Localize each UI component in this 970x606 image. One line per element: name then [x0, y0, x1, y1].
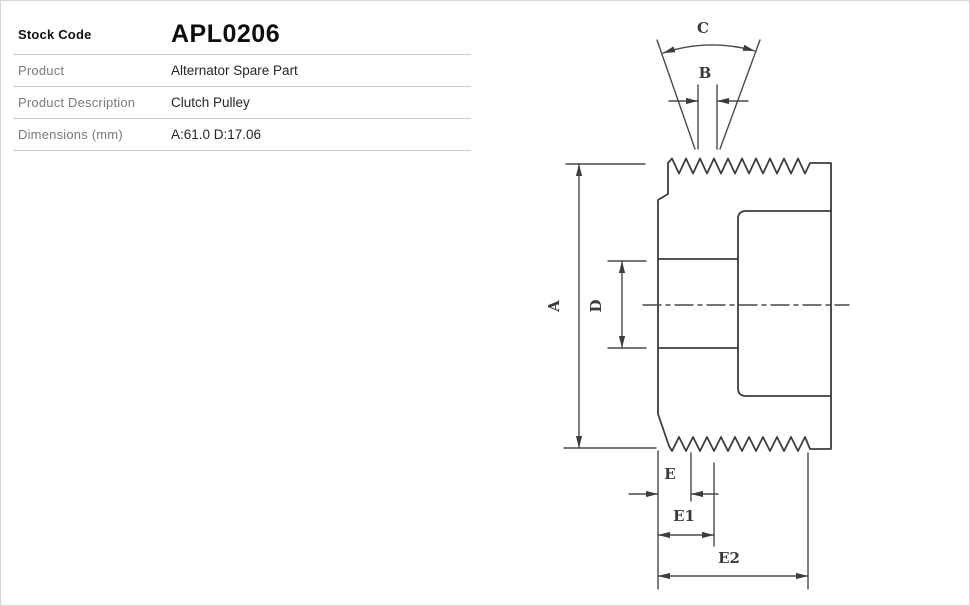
dimension-e1-label: E1 [673, 507, 695, 525]
dimension-d: D [587, 261, 646, 348]
groove-flank-left [657, 40, 695, 149]
pulley-cross-section [643, 159, 849, 452]
pulley-lower-section [658, 348, 831, 451]
dimension-e-label: E [664, 465, 675, 483]
angle-c-arc [663, 45, 755, 53]
pulley-technical-drawing: C B A D [1, 1, 970, 606]
dimension-c-label: C [697, 19, 709, 37]
dimensions-e: E E1 E2 [629, 451, 808, 589]
dimension-e2-label: E2 [718, 549, 740, 567]
product-sheet: Stock Code APL0206 Product Alternator Sp… [0, 0, 970, 606]
dimension-a-label: A [545, 300, 563, 313]
dimension-b-label: B [699, 64, 712, 82]
dimension-d-label: D [587, 299, 605, 312]
groove-flank-right [720, 40, 760, 149]
pulley-upper-section [658, 159, 831, 260]
groove-detail: C B [657, 19, 760, 149]
